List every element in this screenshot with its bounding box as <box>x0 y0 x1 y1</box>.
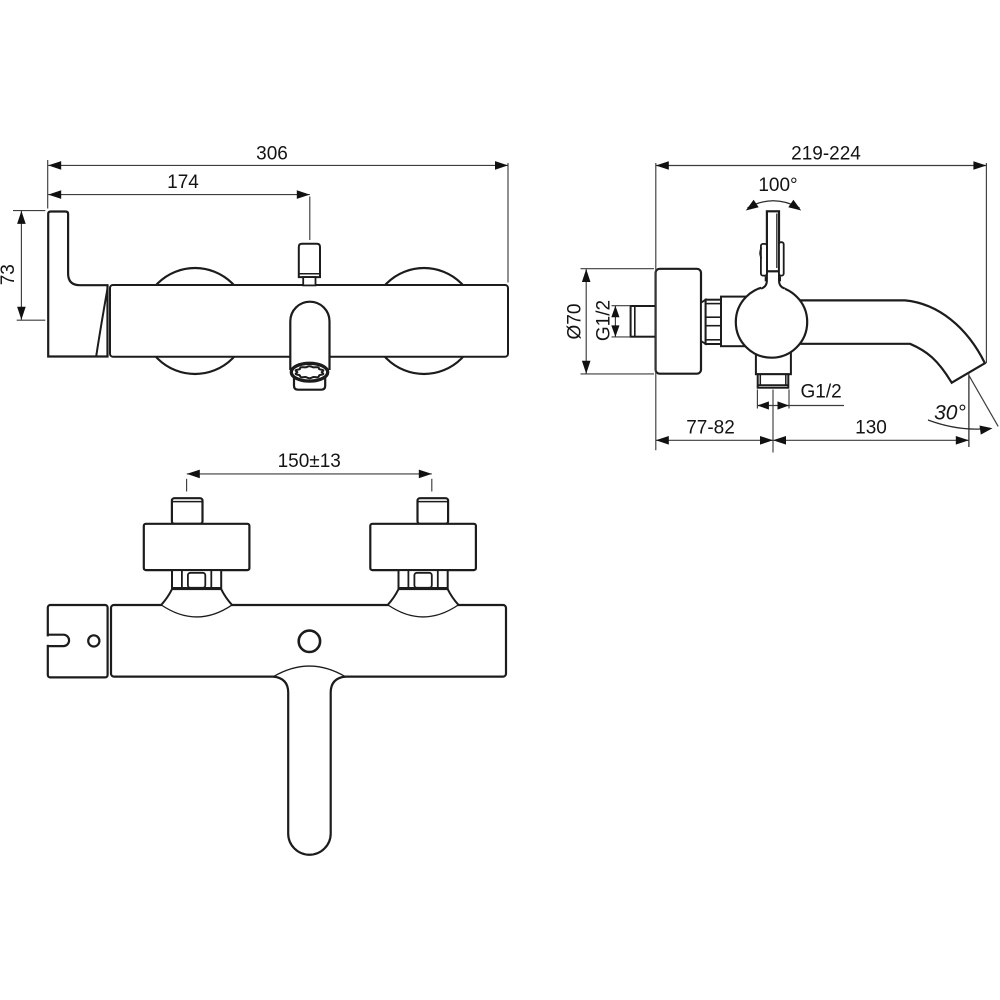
svg-text:G1/2: G1/2 <box>594 300 615 341</box>
svg-text:174: 174 <box>167 172 199 193</box>
svg-text:130: 130 <box>855 418 887 439</box>
svg-text:73: 73 <box>0 264 19 285</box>
svg-text:G1/2: G1/2 <box>801 382 842 403</box>
svg-text:100°: 100° <box>758 175 797 196</box>
svg-text:219-224: 219-224 <box>791 144 861 165</box>
svg-text:77-82: 77-82 <box>686 418 735 439</box>
svg-text:150±13: 150±13 <box>278 451 341 472</box>
svg-text:306: 306 <box>256 144 288 165</box>
svg-text:30°: 30° <box>934 402 966 425</box>
svg-text:Ø70: Ø70 <box>565 304 586 340</box>
